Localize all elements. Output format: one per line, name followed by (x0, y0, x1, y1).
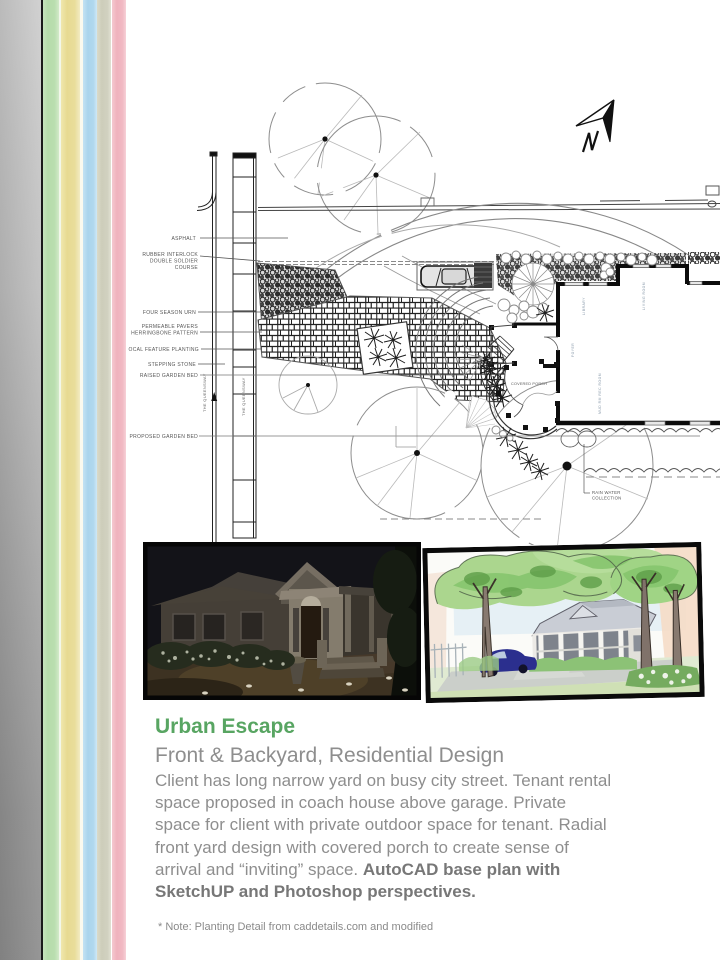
svg-text:LIBRARY: LIBRARY (582, 297, 586, 315)
svg-text:PROPOSED GARDEN BED: PROPOSED GARDEN BED (130, 434, 199, 440)
svg-text:THE QUEENSWAY: THE QUEENSWAY (202, 373, 207, 412)
svg-text:ASPHALT: ASPHALT (171, 236, 196, 242)
svg-text:COURSE: COURSE (175, 265, 199, 271)
svg-text:COLLECTION: COLLECTION (592, 496, 621, 501)
svg-text:RUBBER INTERLOCK: RUBBER INTERLOCK (142, 252, 198, 258)
svg-text:DOUBLE SOLDIER: DOUBLE SOLDIER (150, 259, 198, 265)
svg-text:OCAL FEATURE PLANTING: OCAL FEATURE PLANTING (129, 347, 199, 353)
svg-text:HERRINGBONE PATTERN: HERRINGBONE PATTERN (131, 331, 198, 337)
svg-text:RAIN WATER: RAIN WATER (592, 490, 621, 495)
svg-text:MUD RM REC ROOM: MUD RM REC ROOM (598, 373, 602, 414)
svg-text:RAISED GARDEN BED: RAISED GARDEN BED (140, 373, 198, 379)
svg-text:COVERED PORCH: COVERED PORCH (511, 382, 547, 386)
svg-text:PERMEABLE PAVERS: PERMEABLE PAVERS (142, 324, 199, 330)
svg-text:THE QUEENSWAY: THE QUEENSWAY (241, 377, 246, 416)
svg-text:FOYER: FOYER (571, 343, 575, 357)
svg-text:LIVING ROOM: LIVING ROOM (642, 282, 646, 310)
svg-text:FOUR SEASON URN: FOUR SEASON URN (143, 310, 196, 316)
svg-text:STEPPING STONE: STEPPING STONE (148, 362, 196, 368)
